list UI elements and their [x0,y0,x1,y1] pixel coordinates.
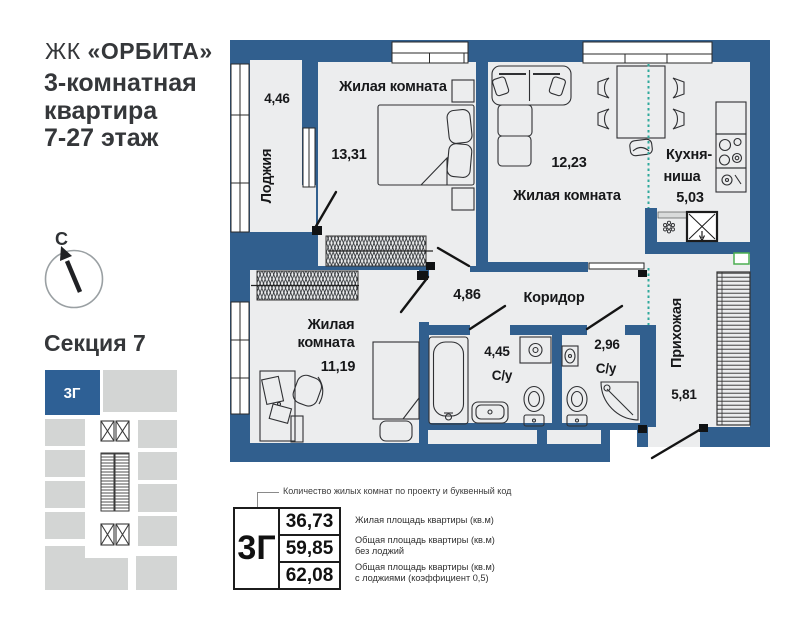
living11-name-1: Жилая [307,317,355,333]
radiator [326,236,433,266]
bath-large-area: 4,45 [484,344,510,359]
kitchen-name-2: ниша [663,169,701,185]
summary-values: 36,73 59,85 62,08 [278,507,341,590]
highlighted-unit-label: 3Г [64,385,81,402]
hallway-area: 5,81 [671,387,697,402]
living11-name-2: комната [297,335,355,351]
annotation-text: Количество жилых комнат по проекту и бук… [283,486,511,496]
bath-large-name: С/у [492,368,513,383]
apartment-title-line2: квартира [44,98,197,126]
apartment-title-line1: 3-комнатная [44,70,197,98]
kitchen-sink [687,212,717,241]
living12-area: 12,23 [551,155,586,171]
bath-small-name: С/у [596,361,617,376]
vent-marker [734,253,749,264]
summary-table: 3Г 36,73 59,85 62,08 [233,507,341,590]
section-title: Секция 7 [44,330,146,357]
loggia-area: 4,46 [264,91,290,106]
stairs-icon [101,453,129,511]
living-area-label: Жилая площадь квартиры (кв.м) [355,515,494,526]
hallway-name: Прихожая [669,298,685,368]
living-area-value: 36,73 [278,507,341,536]
kitchen-name-1: Кухня- [666,147,712,163]
complex-title: ЖК «ОРБИТА» [45,38,213,65]
annotation-leader-line [257,492,279,507]
compass-arrow-shaft [67,261,80,292]
complex-prefix: ЖК [45,38,81,64]
threshold [589,263,644,269]
wardrobe [717,272,750,425]
total-area-loggia-label: Общая площадь квартиры (кв.м) с лоджиями… [355,562,495,584]
living12-name: Жилая комната [512,188,622,204]
living13-name: Жилая комната [338,79,448,95]
radiator [251,271,359,300]
living13-area: 13,31 [331,147,366,163]
kitchen-wall-stub [645,208,657,242]
complex-name: «ОРБИТА» [88,38,213,64]
compass-north-label: С [55,229,68,249]
living11-area: 11,19 [321,359,356,375]
page: ЖК «ОРБИТА» 3-комнатная квартира 7-27 эт… [0,0,800,642]
unit-code-cell: 3Г [233,507,280,590]
loggia-name: Лоджия [259,149,275,204]
corridor-area: 4,86 [453,287,481,303]
floor-plan: 4,46 Лоджия Жилая комната 13,31 12,23 Жи… [225,28,775,468]
apartment-title-line3: 7-27 этаж [44,125,197,153]
kitchen-area: 5,03 [676,190,704,206]
compass-icon: С [38,222,113,317]
corridor-name: Коридор [524,290,585,306]
total-area-label: Общая площадь квартиры (кв.м) без лоджий [355,535,495,557]
total-area-loggia-value: 62,08 [278,561,341,590]
total-area-value: 59,85 [278,534,341,563]
window-top-2 [583,42,712,63]
building-section-plan: 3Г [40,366,180,594]
bath-small-area: 2,96 [594,337,620,352]
apartment-title: 3-комнатная квартира 7-27 этаж [44,70,197,153]
kitchen-shelf [658,212,687,218]
